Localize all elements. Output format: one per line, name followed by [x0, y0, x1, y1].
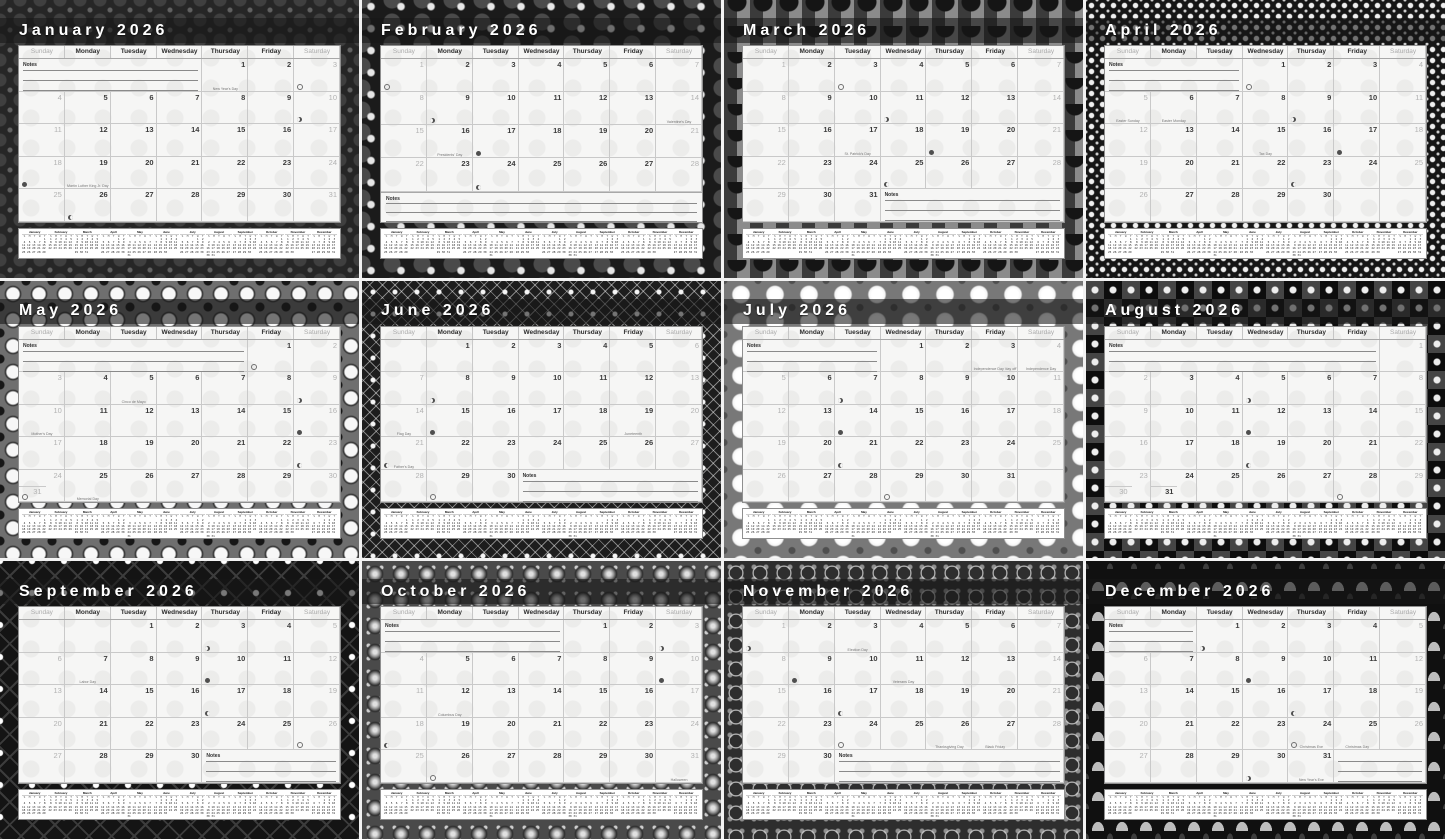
mini-month-week — [799, 535, 824, 538]
day-cell: 1 — [743, 620, 789, 653]
weekday-header-row: SundayMondayTuesdayWednesdayThursdayFrid… — [1105, 46, 1426, 59]
notes-line — [747, 353, 877, 362]
weekday-header: Monday — [427, 327, 473, 339]
mini-month-week — [101, 535, 126, 538]
day-number: 6 — [195, 373, 199, 382]
day-cell: 23 — [473, 437, 519, 470]
mini-month-june: June S M T W T F S 1 2 3 4 5 6 7 8 9 10 … — [154, 510, 179, 537]
weekday-header: Friday — [610, 327, 656, 339]
day-cell: 2 — [610, 620, 656, 653]
day-number: 3 — [241, 621, 245, 630]
notes-line — [23, 72, 198, 81]
mini-month-april: April S M T W T F S 1 2 3 4 5 6 7 8 9 10… — [101, 510, 126, 537]
weekday-header: Monday — [65, 607, 111, 619]
day-cell: 2 — [1105, 372, 1151, 405]
day-cell: 31New Year's Eve — [1288, 750, 1334, 783]
holiday-label: Martin Luther King Jr. Day — [65, 184, 111, 188]
day-number: 6 — [58, 654, 62, 663]
day-number: 21 — [99, 719, 107, 728]
mini-month-week — [957, 535, 982, 538]
day-number: 8 — [603, 654, 607, 663]
day-cell: 31Halloween — [656, 750, 702, 783]
mini-month-week: 30 31 — [206, 254, 231, 257]
day-number: 25 — [1231, 471, 1239, 480]
day-number: 23 — [283, 158, 291, 167]
year-overview-strip: January S M T W T F S 1 2 3 4 5 6 7 8 9 … — [18, 789, 341, 820]
day-number: 25 — [553, 159, 561, 168]
weekday-header: Friday — [972, 46, 1018, 58]
day-number: 7 — [195, 93, 199, 102]
day-cell: 8 — [743, 653, 789, 686]
weekday-header: Monday — [65, 327, 111, 339]
calendar-sheet: SundayMondayTuesdayWednesdayThursdayFrid… — [380, 326, 703, 504]
weekday-header: Wednesday — [519, 46, 565, 58]
mini-month-july: July S M T W T F S 1 2 3 4 5 6 7 8 9 10 … — [904, 791, 929, 818]
weekday-header-row: SundayMondayTuesdayWednesdayThursdayFrid… — [743, 327, 1064, 340]
day-number: 14 — [1369, 406, 1377, 415]
day-cell: 3 — [294, 59, 340, 92]
mini-month-week: 30 31 — [930, 815, 955, 818]
day-number: 19 — [961, 125, 969, 134]
day-number: 28 — [1053, 719, 1061, 728]
month-panel-june: June 2026SundayMondayTuesdayWednesdayThu… — [362, 281, 721, 559]
day-cell: 20 — [157, 437, 203, 470]
day-cell: 15Tax Day — [1243, 124, 1289, 157]
mini-month-week — [48, 535, 73, 538]
day-number: 15 — [416, 126, 424, 135]
mini-month-week — [674, 535, 699, 538]
day-number: 15 — [915, 406, 923, 415]
weekday-header: Monday — [789, 327, 835, 339]
day-number: 12 — [645, 373, 653, 382]
calendar-sheet: SundayMondayTuesdayWednesdayThursdayFrid… — [742, 326, 1065, 504]
mini-month-february: February S M T W T F S 1 2 3 4 5 6 7 8 9… — [772, 510, 797, 537]
day-number: 4 — [1235, 373, 1239, 382]
calendar-sheet: SundayMondayTuesdayWednesdayThursdayFrid… — [742, 45, 1065, 223]
holiday-label: Labor Day — [65, 680, 111, 684]
day-number: 1 — [287, 341, 291, 350]
day-cell: 21 — [1018, 124, 1064, 157]
day-cell: 12 — [1243, 405, 1289, 438]
day-cell: 14 — [65, 685, 111, 718]
day-number: 11 — [1369, 654, 1377, 663]
day-cell: 28 — [1197, 189, 1243, 222]
mini-month-july: July S M T W T F S 1 2 3 4 5 6 7 8 9 10 … — [1266, 230, 1291, 257]
day-number: 7 — [557, 654, 561, 663]
mini-month-week — [154, 815, 179, 818]
day-cell: 23 — [789, 157, 835, 190]
day-number: 9 — [1327, 93, 1331, 102]
day-number: 30 — [283, 190, 291, 199]
day-number: 5 — [149, 373, 153, 382]
day-cell: 13 — [111, 124, 157, 157]
day-cell: 5 — [1243, 372, 1289, 405]
mini-month-october: October S M T W T F S 1 2 3 4 5 6 7 8 9 … — [621, 230, 646, 257]
mini-month-week — [772, 535, 797, 538]
day-cell: 26 — [1380, 718, 1426, 751]
mini-month-week — [647, 254, 672, 257]
day-cell: 10 — [202, 653, 248, 686]
day-cell: 4 — [1334, 620, 1380, 653]
mini-month-week — [621, 535, 646, 538]
holiday-label: Independence Day — [1018, 367, 1064, 371]
day-cell: 17 — [1288, 685, 1334, 718]
day-cell: 2 — [473, 340, 519, 373]
day-number: 18 — [915, 125, 923, 134]
day-cell: 27 — [1105, 750, 1151, 783]
day-number: 17 — [237, 686, 245, 695]
moon-last-icon — [838, 398, 843, 403]
mini-month-april: April S M T W T F S 1 2 3 4 5 6 7 8 9 10… — [825, 230, 850, 257]
mini-month-june: June S M T W T F S 1 2 3 4 5 6 7 8 9 10 … — [1240, 791, 1265, 818]
day-number: 29 — [599, 751, 607, 760]
weekday-header: Friday — [248, 46, 294, 58]
calendar-sheet: SundayMondayTuesdayWednesdayThursdayFrid… — [380, 606, 703, 784]
day-number: 20 — [54, 719, 62, 728]
mini-month-february: February S M T W T F S 1 2 3 4 5 6 7 8 9… — [410, 230, 435, 257]
day-cell: 13 — [1151, 124, 1197, 157]
day-cell: 15 — [111, 685, 157, 718]
weekday-header: Monday — [427, 607, 473, 619]
mini-month-may: May S M T W T F S 1 2 3 4 5 6 7 8 910 11… — [851, 230, 876, 257]
month-title-band: April 2026 — [1086, 18, 1445, 43]
day-number: 6 — [149, 93, 153, 102]
day-cell: 2 — [427, 59, 473, 92]
mini-month-week — [101, 254, 126, 257]
day-number: 29 — [915, 471, 923, 480]
mini-month-october: October S M T W T F S 1 2 3 4 5 6 7 8 9 … — [1345, 791, 1370, 818]
moon-new-icon — [430, 430, 435, 435]
weeks-grid: 1234567891011121314Valentine's Day1516Pr… — [381, 59, 702, 192]
day-cell: 25 — [19, 189, 65, 222]
day-cell: 11 — [65, 405, 111, 438]
day-number: 3 — [1373, 60, 1377, 69]
day-number: 19 — [145, 438, 153, 447]
day-cell: 18 — [65, 437, 111, 470]
day-number: 5 — [782, 373, 786, 382]
day-cell: 6 — [972, 59, 1018, 92]
moon-first-icon — [838, 463, 843, 468]
weeks-grid: Notes12345678910111213141516171819202122… — [1105, 620, 1426, 783]
mini-month-february: February S M T W T F S 1 2 3 4 5 6 7 8 9… — [1134, 791, 1159, 818]
mini-month-july: July S M T W T F S 1 2 3 4 5 6 7 8 9 10 … — [1266, 791, 1291, 818]
day-number: 6 — [1144, 654, 1148, 663]
notes-area: Notes — [835, 750, 1064, 783]
day-cell: 21 — [656, 125, 702, 158]
weekday-header: Wednesday — [157, 46, 203, 58]
mini-month-week — [285, 535, 310, 538]
day-cell: 20 — [972, 124, 1018, 157]
day-cell: 21 — [1197, 157, 1243, 190]
mini-month-march: March S M T W T F S 1 2 3 4 5 6 7 8 9 10… — [1161, 230, 1186, 257]
day-cell: 15 — [743, 685, 789, 718]
year-overview-strip: January S M T W T F S 1 2 3 4 5 6 7 8 9 … — [1104, 789, 1427, 820]
notes-line — [839, 763, 1060, 772]
notes-line: Notes — [1109, 62, 1239, 71]
day-number: 26 — [778, 471, 786, 480]
mini-month-week — [1187, 254, 1212, 257]
day-cell: 20 — [1105, 718, 1151, 751]
moon-new-icon — [792, 678, 797, 683]
day-number: 25 — [1053, 438, 1061, 447]
notes-line — [1109, 353, 1376, 362]
day-number: 27 — [54, 751, 62, 760]
mini-month-november: November S M T W T F S 1 2 3 4 5 6 7 8 9… — [647, 230, 672, 257]
mini-month-may: May S M T W T F S 1 2 3 4 5 6 7 8 910 11… — [1213, 510, 1238, 537]
day-cell: 5 — [926, 59, 972, 92]
day-cell: 22 — [564, 718, 610, 751]
day-number: 23 — [645, 719, 653, 728]
day-cell: 10 — [835, 653, 881, 686]
day-number: 1 — [1235, 621, 1239, 630]
day-number: 22 — [1231, 719, 1239, 728]
weekday-header: Saturday — [294, 327, 340, 339]
day-cell: 9 — [610, 653, 656, 686]
day-cell: 19 — [1243, 437, 1289, 470]
mini-month-july: July S M T W T F S 1 2 3 4 5 6 7 8 9 10 … — [904, 230, 929, 257]
day-cell: 22 — [1243, 157, 1289, 190]
weeks-grid: 123Election Day4567891011Veterans Day121… — [743, 620, 1064, 783]
day-number: 11 — [283, 654, 291, 663]
day-cell: 2 — [294, 340, 340, 373]
mini-month-week — [1134, 815, 1159, 818]
year-overview-strip: January S M T W T F S 1 2 3 4 5 6 7 8 9 … — [742, 789, 1065, 820]
day-number: 13 — [1185, 125, 1193, 134]
weekday-header: Saturday — [1018, 607, 1064, 619]
day-cell: 24Christmas Eve — [1288, 718, 1334, 751]
day-cell: 25 — [881, 718, 927, 751]
day-number: 16 — [507, 406, 515, 415]
notes-line: Notes — [386, 196, 697, 204]
weekday-header: Thursday — [1288, 327, 1334, 339]
day-cell: 9 — [789, 92, 835, 125]
day-number: 26 — [1140, 190, 1148, 199]
mini-month-january: January S M T W T F S 1 2 3 4 5 6 7 8 9 … — [746, 510, 771, 537]
weekday-header: Monday — [789, 607, 835, 619]
day-number: 8 — [241, 93, 245, 102]
weeks-grid: Notes12345678910111213141516171819202122… — [1105, 340, 1426, 503]
day-cell: 17 — [1334, 124, 1380, 157]
day-number: 26 — [1415, 719, 1423, 728]
day-cell: 4 — [519, 59, 565, 92]
day-cell: 18 — [564, 405, 610, 438]
day-number: 17 — [553, 406, 561, 415]
month-title-band: July 2026 — [724, 299, 1083, 324]
day-cell: 22 — [1197, 718, 1243, 751]
day-cell: 13 — [972, 653, 1018, 686]
weekday-header: Sunday — [19, 46, 65, 58]
mini-month-week — [1398, 535, 1423, 538]
day-cell: 20 — [610, 125, 656, 158]
day-cell: 17 — [972, 405, 1018, 438]
day-cell: 28 — [65, 750, 111, 783]
day-cell: 10Mother's Day — [19, 405, 65, 438]
mini-month-week — [595, 535, 620, 538]
day-cell: 17 — [294, 124, 340, 157]
day-cell: 3 — [19, 372, 65, 405]
mini-month-december: December S M T W T F S 1 2 3 4 5 6 7 8 9… — [312, 510, 337, 537]
moon-full-icon — [384, 84, 390, 90]
mini-month-week — [674, 254, 699, 257]
day-cell: 28 — [1018, 157, 1064, 190]
day-cell: 11 — [381, 685, 427, 718]
day-cell: 1 — [1380, 340, 1426, 373]
day-cell: 23 — [926, 437, 972, 470]
day-cell: 6 — [111, 92, 157, 125]
day-number: 6 — [1011, 60, 1015, 69]
day-number: 15 — [1415, 406, 1423, 415]
mini-month-january: January S M T W T F S 1 2 3 4 5 6 7 8 9 … — [746, 230, 771, 257]
notes-label: Notes — [1109, 623, 1123, 629]
day-number: 22 — [237, 158, 245, 167]
day-number: 22 — [1415, 438, 1423, 447]
day-cell: 12 — [65, 124, 111, 157]
mini-month-december: December S M T W T F S 1 2 3 4 5 6 7 8 9… — [1036, 510, 1061, 537]
mini-month-october: October S M T W T F S 1 2 3 4 5 6 7 8 9 … — [259, 510, 284, 537]
mini-month-week — [1161, 815, 1186, 818]
day-number: 2 — [466, 60, 470, 69]
weekday-header: Wednesday — [881, 607, 927, 619]
day-cell: 18 — [1197, 437, 1243, 470]
day-number: 9 — [1144, 406, 1148, 415]
day-number: 22 — [1277, 158, 1285, 167]
mini-month-week — [1345, 535, 1370, 538]
day-cell: 6 — [19, 653, 65, 686]
holiday-label: Easter Monday — [1151, 119, 1197, 123]
day-number: 14 — [1053, 654, 1061, 663]
day-cell: 27 — [19, 750, 65, 783]
mini-month-week — [1036, 815, 1061, 818]
day-cell: 8 — [202, 92, 248, 125]
moon-first-icon — [297, 463, 302, 468]
day-number: 8 — [287, 373, 291, 382]
month-panel-april: April 2026SundayMondayTuesdayWednesdayTh… — [1086, 0, 1445, 278]
day-cell: 7 — [202, 372, 248, 405]
day-number: 15 — [145, 686, 153, 695]
day-cell: 27 — [1151, 189, 1197, 222]
mini-month-week — [101, 815, 126, 818]
day-number: 31 — [33, 487, 41, 496]
mini-month-february: February S M T W T F S 1 2 3 4 5 6 7 8 9… — [48, 510, 73, 537]
mini-month-may: May S M T W T F S 1 2 3 4 5 6 7 8 910 11… — [851, 510, 876, 537]
day-number: 4 — [919, 621, 923, 630]
day-number: 15 — [1231, 686, 1239, 695]
mini-month-march: March S M T W T F S 1 2 3 4 5 6 7 8 9 10… — [799, 510, 824, 537]
day-cell: 21Father's Day — [381, 437, 427, 470]
day-cell: 14 — [1018, 653, 1064, 686]
day-number: 7 — [104, 654, 108, 663]
day-cell: 13 — [19, 685, 65, 718]
mini-month-week — [1371, 815, 1396, 818]
day-cell: 18 — [19, 157, 65, 190]
moon-full-icon — [297, 742, 303, 748]
month-title-band: December 2026 — [1086, 579, 1445, 604]
day-cell: 29 — [1243, 189, 1289, 222]
day-number: 1 — [1281, 60, 1285, 69]
day-cell: 14Valentine's Day — [656, 92, 702, 125]
day-number: 13 — [1323, 406, 1331, 415]
day-number: 2 — [1144, 373, 1148, 382]
holiday-label: Flag Day — [381, 432, 427, 436]
day-number: 15 — [1277, 125, 1285, 134]
weekday-header-row: SundayMondayTuesdayWednesdayThursdayFrid… — [743, 46, 1064, 59]
mini-month-november: November S M T W T F S 1 2 3 4 5 6 7 8 9… — [285, 791, 310, 818]
notes-line — [1109, 72, 1239, 81]
day-number: 28 — [691, 159, 699, 168]
holiday-label: Cinco de Mayo — [111, 400, 157, 404]
day-number: 3 — [1327, 621, 1331, 630]
day-number: 18 — [599, 406, 607, 415]
day-cell: 3 — [835, 59, 881, 92]
moon-first-icon — [884, 182, 889, 187]
day-number: 8 — [782, 654, 786, 663]
mini-month-december: December S M T W T F S 1 2 3 4 5 6 7 8 9… — [674, 230, 699, 257]
day-cell: 30 — [157, 750, 203, 783]
notes-area: Notes — [381, 620, 564, 653]
day-number: 16 — [461, 126, 469, 135]
weekday-header: Sunday — [743, 327, 789, 339]
day-cell: 13 — [610, 92, 656, 125]
day-number: 6 — [695, 341, 699, 350]
moon-last-icon — [1200, 646, 1205, 651]
day-cell: 2 — [1243, 620, 1289, 653]
day-number: 1 — [241, 60, 245, 69]
day-number: 24 — [869, 719, 877, 728]
calendar-sheet: SundayMondayTuesdayWednesdayThursdayFrid… — [1104, 606, 1427, 784]
day-cell: 17 — [473, 125, 519, 158]
mini-month-week — [1009, 254, 1034, 257]
day-number: 4 — [104, 373, 108, 382]
day-cell: 15 — [248, 405, 294, 438]
day-cell: 15 — [1197, 685, 1243, 718]
mini-month-week — [746, 815, 771, 818]
day-number: 16 — [283, 125, 291, 134]
day-number: 29 — [237, 190, 245, 199]
mini-month-october: October S M T W T F S 1 2 3 4 5 6 7 8 9 … — [983, 791, 1008, 818]
day-number: 12 — [145, 406, 153, 415]
holiday-label: Columbus Day — [427, 713, 473, 717]
mini-month-week — [312, 535, 337, 538]
day-number: 19 — [645, 406, 653, 415]
day-number: 25 — [1415, 158, 1423, 167]
day-number: 25 — [54, 190, 62, 199]
day-cell: 2431 — [19, 470, 65, 503]
day-number: 12 — [1415, 654, 1423, 663]
day-number: 14 — [869, 406, 877, 415]
weekday-header: Sunday — [1105, 327, 1151, 339]
day-cell: 20 — [473, 718, 519, 751]
day-cell: 28 — [202, 470, 248, 503]
day-cell: 17 — [519, 405, 565, 438]
day-number: 1 — [420, 60, 424, 69]
day-number: 10 — [691, 654, 699, 663]
month-title: August 2026 — [1105, 302, 1244, 320]
day-cell: 7 — [1334, 372, 1380, 405]
day-cell: 14 — [519, 685, 565, 718]
day-number: 22 — [915, 438, 923, 447]
day-cell: 26Thanksgiving Day — [926, 718, 972, 751]
day-cell: 1 — [381, 59, 427, 92]
mini-month-august: August S M T W T F S 1 2 3 4 5 6 7 8 9 1… — [1292, 230, 1317, 257]
day-cell: 25Memorial Day — [65, 470, 111, 503]
day-cell: 5 — [427, 653, 473, 686]
mini-month-week — [259, 254, 284, 257]
day-cell: 7 — [1197, 92, 1243, 125]
mini-month-week — [1266, 535, 1291, 538]
day-cell: 10 — [294, 92, 340, 125]
day-number: 1 — [782, 621, 786, 630]
moon-full-icon — [1246, 84, 1252, 90]
